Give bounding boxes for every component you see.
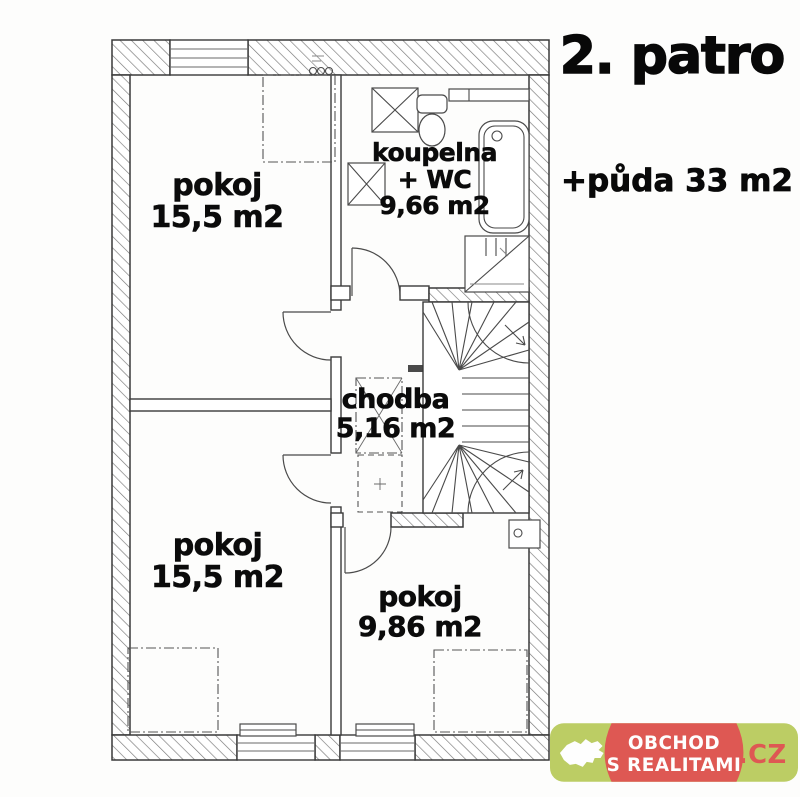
- door-arc-bathroom: [352, 248, 400, 296]
- room-name: koupelna: [347, 140, 522, 167]
- label-room-bottom-left: pokoj 15,5 m2: [125, 530, 310, 594]
- logo-text-line2: S REALITAMI: [607, 755, 742, 776]
- room-name: pokoj: [122, 170, 312, 202]
- label-room-top-left: pokoj 15,5 m2: [122, 170, 312, 234]
- label-room-bottom-middle: pokoj 9,86 m2: [330, 582, 510, 641]
- floor-title: 2. patro: [552, 26, 792, 86]
- attic-note: +půda 33 m2: [558, 163, 796, 199]
- label-bathroom: koupelna + WC 9,66 m2: [347, 140, 522, 220]
- flue-box: [509, 520, 540, 548]
- radiator-icon: [356, 724, 414, 736]
- door-arc-top-left-room: [283, 312, 331, 360]
- room-area: 15,5 m2: [122, 202, 312, 234]
- logo-text-tld: .CZ: [738, 740, 787, 770]
- door-arc-bottom-left-room: [283, 455, 331, 503]
- room-name: pokoj: [330, 582, 510, 612]
- window-bottom-middle: [340, 735, 415, 760]
- room-area: 5,16 m2: [318, 415, 473, 444]
- door-arc-bottom-middle-room: [345, 527, 391, 573]
- radiators: [240, 724, 414, 736]
- stair-niche: [465, 236, 529, 292]
- window-top: [170, 40, 248, 75]
- radiator-icon: [240, 724, 296, 736]
- room-name-suffix: + WC: [347, 167, 522, 194]
- window-bottom-left: [237, 735, 315, 760]
- room-area: 15,5 m2: [125, 562, 310, 594]
- agency-logo: OBCHOD S REALITAMI .CZ: [550, 723, 798, 782]
- room-name: chodba: [318, 386, 473, 415]
- room-name: pokoj: [125, 530, 310, 562]
- room-area: 9,66 m2: [347, 193, 522, 220]
- label-hallway: chodba 5,16 m2: [318, 386, 473, 443]
- shower-icon: [372, 88, 418, 132]
- floorplan-page: 2. patro +půda 33 m2 pokoj 15,5 m2 koupe…: [0, 0, 800, 797]
- hallway-dashed-outline: [358, 455, 402, 512]
- vanity-counter: [449, 89, 529, 101]
- logo-text-line1: OBCHOD: [628, 733, 720, 754]
- room-area: 9,86 m2: [330, 612, 510, 642]
